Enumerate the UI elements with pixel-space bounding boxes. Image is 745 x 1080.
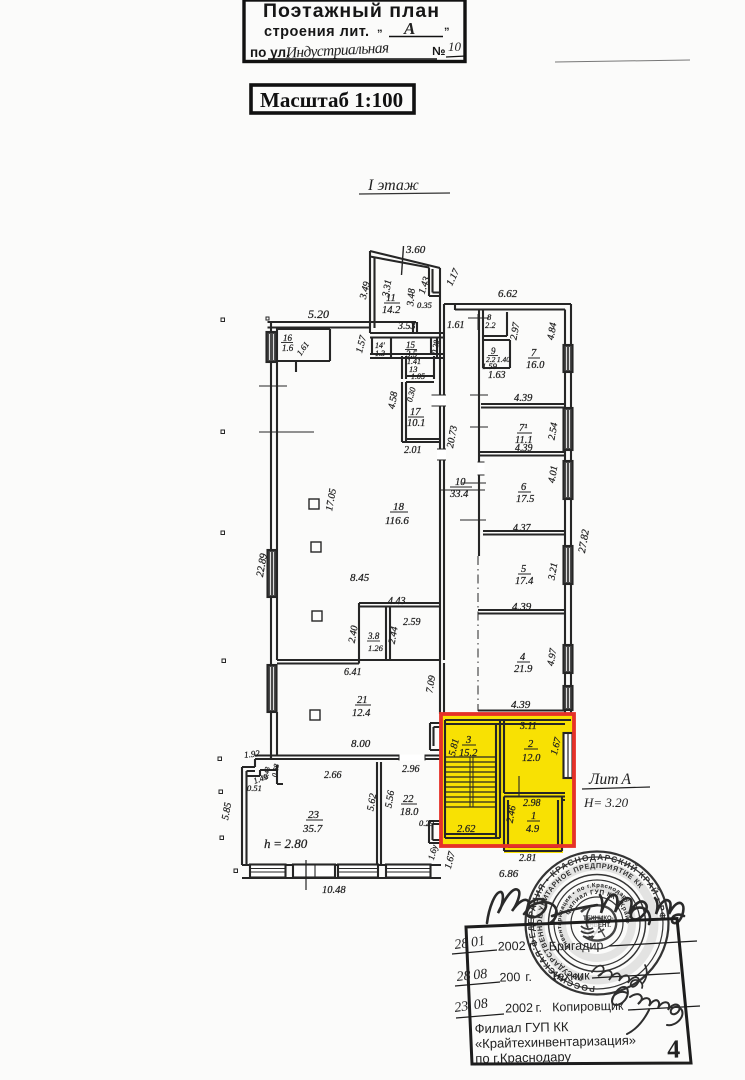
svg-text:116.6: 116.6 bbox=[385, 515, 409, 527]
svg-text:12.4: 12.4 bbox=[352, 708, 371, 719]
svg-text:2.59: 2.59 bbox=[403, 617, 421, 628]
svg-text:2.54: 2.54 bbox=[547, 422, 561, 441]
svg-text:3.8: 3.8 bbox=[367, 631, 380, 641]
svg-text:12.0: 12.0 bbox=[522, 753, 541, 764]
svg-text:4.01: 4.01 bbox=[547, 465, 561, 484]
svg-text:4.39: 4.39 bbox=[511, 699, 531, 711]
svg-text:3.21: 3.21 bbox=[546, 562, 560, 582]
svg-text:0.43: 0.43 bbox=[262, 766, 272, 780]
svg-text:2.66: 2.66 bbox=[324, 770, 342, 781]
svg-text:3.11: 3.11 bbox=[519, 721, 537, 732]
svg-text:1.17: 1.17 bbox=[445, 266, 463, 287]
svg-text:4.58: 4.58 bbox=[387, 391, 401, 410]
svg-text:Н= 3.20: Н= 3.20 bbox=[583, 795, 629, 810]
svg-text:4.39: 4.39 bbox=[514, 393, 533, 404]
svg-text:4.39: 4.39 bbox=[515, 443, 533, 454]
svg-text:1.92: 1.92 bbox=[244, 748, 261, 760]
svg-text:8.00: 8.00 bbox=[351, 738, 371, 750]
svg-text:4.97: 4.97 bbox=[546, 647, 560, 667]
svg-text:2.98: 2.98 bbox=[523, 798, 541, 809]
svg-text:8.45: 8.45 bbox=[350, 572, 370, 584]
svg-text:по ул.: по ул. bbox=[250, 45, 290, 60]
svg-text:23 08: 23 08 bbox=[453, 996, 488, 1016]
svg-text:10.1: 10.1 bbox=[407, 418, 425, 429]
svg-text:17: 17 bbox=[410, 407, 421, 418]
svg-text:4: 4 bbox=[520, 652, 526, 663]
svg-text:Техник: Техник bbox=[550, 969, 590, 984]
svg-text:I этаж: I этаж bbox=[367, 177, 419, 194]
svg-text:1: 1 bbox=[531, 811, 536, 822]
svg-text:0.51: 0.51 bbox=[247, 783, 262, 793]
svg-text:1.43: 1.43 bbox=[417, 275, 433, 295]
svg-text:по г.Краснодару: по г.Краснодару bbox=[475, 1049, 572, 1066]
svg-text:4.9: 4.9 bbox=[526, 824, 540, 835]
svg-text:5.56: 5.56 bbox=[383, 790, 397, 809]
svg-text:h = 2.80: h = 2.80 bbox=[264, 836, 308, 851]
svg-text:Бригадир: Бригадир bbox=[549, 938, 604, 953]
svg-text:16: 16 bbox=[283, 333, 293, 343]
svg-text:0.29: 0.29 bbox=[419, 818, 435, 828]
svg-text:17.4: 17.4 bbox=[515, 576, 534, 587]
svg-text:2.01: 2.01 bbox=[404, 445, 422, 456]
svg-text:6.62: 6.62 bbox=[498, 288, 518, 300]
svg-text:3: 3 bbox=[465, 735, 471, 746]
svg-text:28 08: 28 08 bbox=[456, 967, 488, 985]
svg-text:2.81: 2.81 bbox=[519, 853, 537, 864]
svg-text:6: 6 bbox=[521, 482, 527, 493]
svg-text:2002 г.: 2002 г. bbox=[505, 1001, 542, 1016]
svg-text:6.86: 6.86 bbox=[499, 868, 519, 880]
svg-text:5.85: 5.85 bbox=[220, 802, 234, 821]
svg-text:7¹: 7¹ bbox=[519, 423, 527, 434]
svg-text:3.60: 3.60 bbox=[405, 244, 426, 256]
svg-text:27.82: 27.82 bbox=[577, 528, 592, 554]
svg-text:4.43: 4.43 bbox=[388, 596, 406, 607]
svg-text:11: 11 bbox=[386, 293, 396, 304]
svg-text:1.05: 1.05 bbox=[411, 372, 425, 381]
svg-text:1.57: 1.57 bbox=[354, 334, 369, 355]
svg-text:строения лит.: строения лит. bbox=[264, 24, 370, 40]
svg-text:Копировщик: Копировщик bbox=[552, 999, 624, 1015]
svg-text:14.2: 14.2 bbox=[382, 305, 401, 316]
svg-text:1.61: 1.61 bbox=[447, 320, 465, 331]
svg-text:15.2: 15.2 bbox=[459, 748, 478, 759]
svg-text:2.62: 2.62 bbox=[457, 824, 476, 835]
svg-text:„: „ bbox=[444, 20, 450, 32]
svg-text:18: 18 bbox=[393, 501, 405, 513]
svg-text:35.7: 35.7 bbox=[302, 823, 323, 835]
svg-text:0.28: 0.28 bbox=[270, 763, 281, 778]
svg-text:2.96: 2.96 bbox=[402, 764, 420, 775]
svg-text:1.61: 1.61 bbox=[294, 340, 311, 358]
svg-text:0.35: 0.35 bbox=[417, 300, 432, 310]
svg-text:2.2: 2.2 bbox=[485, 320, 496, 330]
svg-text:17.05: 17.05 bbox=[324, 488, 339, 512]
svg-text:2: 2 bbox=[528, 739, 534, 750]
svg-text:1.6: 1.6 bbox=[282, 343, 294, 353]
svg-text:16.0: 16.0 bbox=[526, 360, 545, 371]
svg-text:21.9: 21.9 bbox=[514, 664, 533, 675]
svg-text:Лит А: Лит А bbox=[588, 771, 632, 788]
svg-text:10.48: 10.48 bbox=[322, 885, 346, 896]
svg-text:5: 5 bbox=[521, 564, 526, 575]
svg-text:2.44: 2.44 bbox=[387, 626, 401, 645]
svg-text:4: 4 bbox=[667, 1035, 681, 1064]
svg-text:1.26: 1.26 bbox=[368, 643, 384, 653]
svg-text:5.20: 5.20 bbox=[308, 307, 329, 321]
svg-text:Масштаб 1:100: Масштаб 1:100 bbox=[260, 88, 403, 112]
svg-text:7.09: 7.09 bbox=[424, 675, 438, 694]
svg-text:3.53: 3.53 bbox=[397, 321, 416, 332]
svg-text:№: № bbox=[432, 44, 445, 58]
svg-text:3.48: 3.48 bbox=[405, 288, 418, 307]
svg-text:4.37: 4.37 bbox=[513, 523, 532, 534]
svg-text:10: 10 bbox=[455, 477, 466, 488]
svg-text:2002 г.: 2002 г. bbox=[498, 939, 536, 954]
svg-text:33.4: 33.4 bbox=[449, 489, 469, 500]
svg-text:1.67: 1.67 bbox=[443, 850, 458, 871]
svg-text:2.97: 2.97 bbox=[509, 321, 523, 341]
svg-text:28 01: 28 01 bbox=[453, 934, 486, 953]
svg-text:18.0: 18.0 bbox=[400, 807, 419, 818]
svg-text:200 г.: 200 г. bbox=[499, 970, 532, 985]
svg-text:А: А bbox=[403, 19, 415, 38]
svg-text:7: 7 bbox=[531, 348, 537, 359]
svg-text:17.5: 17.5 bbox=[516, 494, 534, 505]
svg-text:4.39: 4.39 bbox=[512, 601, 532, 613]
svg-text:6.41: 6.41 bbox=[344, 667, 362, 678]
svg-text:„: „ bbox=[377, 22, 383, 34]
svg-text:22: 22 bbox=[403, 794, 414, 805]
svg-text:23: 23 bbox=[308, 809, 320, 821]
svg-text:20.73: 20.73 bbox=[445, 425, 460, 449]
svg-text:10: 10 bbox=[448, 39, 462, 54]
svg-text:21: 21 bbox=[357, 695, 368, 706]
svg-text:1.6у: 1.6у bbox=[426, 844, 440, 861]
svg-text:1.63: 1.63 bbox=[488, 370, 506, 381]
svg-text:1.3: 1.3 bbox=[375, 349, 385, 358]
svg-text:4.84: 4.84 bbox=[546, 322, 560, 341]
